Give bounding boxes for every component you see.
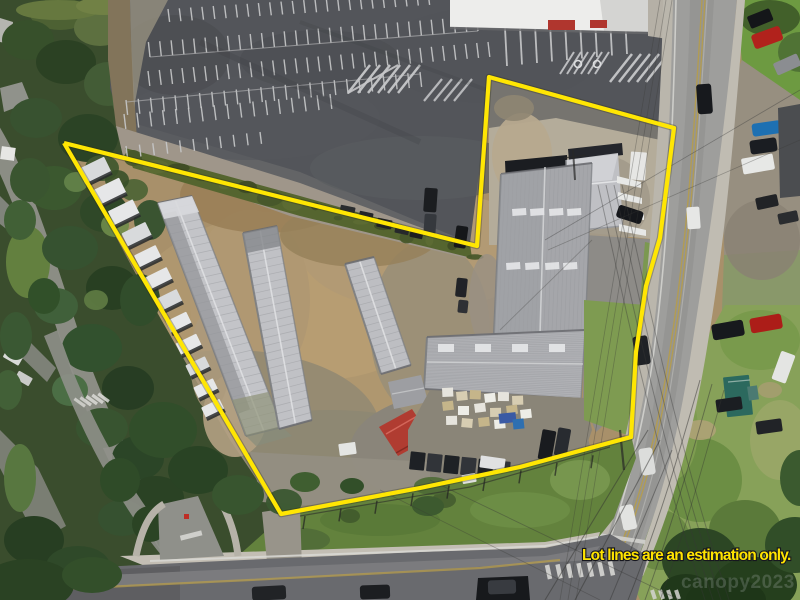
svg-text:Lot lines are an estimation on: Lot lines are an estimation only. bbox=[582, 547, 791, 564]
svg-text:canopy2023: canopy2023 bbox=[681, 572, 795, 593]
